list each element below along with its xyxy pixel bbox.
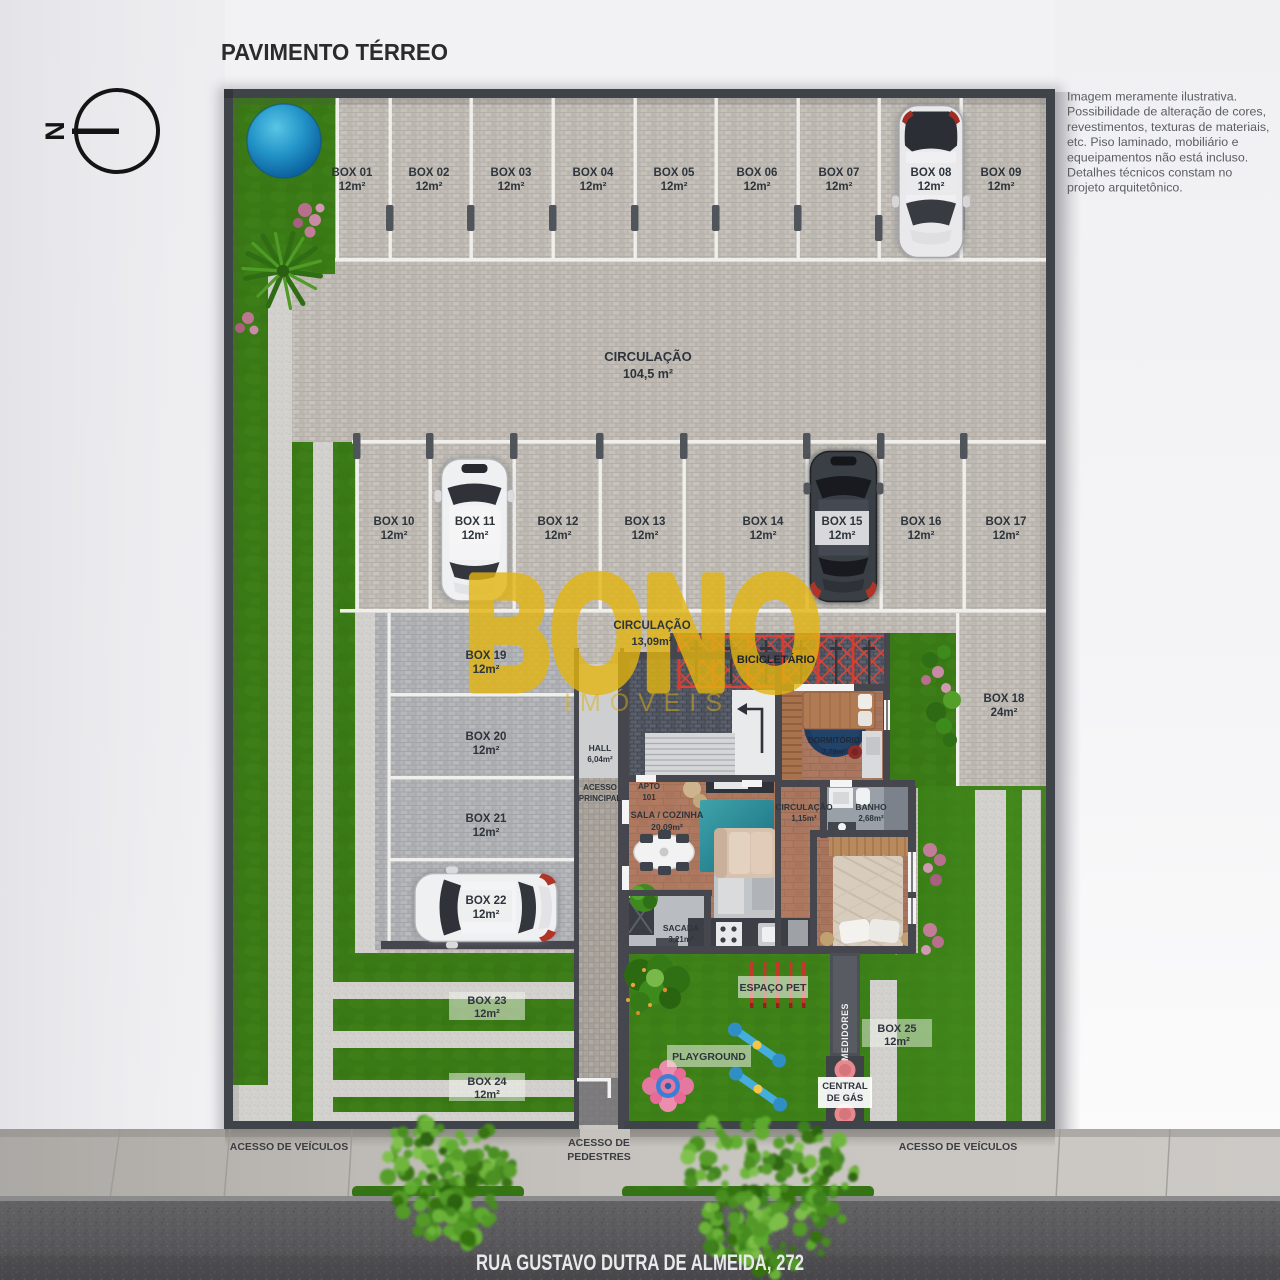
svg-text:APTO: APTO [638,782,660,791]
svg-text:N: N [40,121,70,141]
svg-text:BOX 07: BOX 07 [819,167,860,179]
svg-text:20,09m²: 20,09m² [651,822,683,832]
svg-text:PRINCIPAL: PRINCIPAL [579,794,622,803]
svg-text:Imagem meramente ilustrativa.: Imagem meramente ilustrativa. [1067,90,1237,104]
svg-text:3,21m²: 3,21m² [668,935,694,944]
svg-text:7,79m²: 7,79m² [822,747,846,756]
svg-text:12m²: 12m² [661,181,688,193]
svg-text:BOX 10: BOX 10 [374,516,415,528]
svg-text:12m²: 12m² [416,181,443,193]
svg-text:BOX 05: BOX 05 [654,167,696,179]
svg-text:PAVIMENTO TÉRREO: PAVIMENTO TÉRREO [221,38,448,65]
svg-text:BOX 19: BOX 19 [466,650,507,662]
svg-text:BOX 21: BOX 21 [466,813,508,825]
svg-text:BOX 23: BOX 23 [467,995,506,1007]
svg-text:CIRCULAÇÃO: CIRCULAÇÃO [775,802,833,812]
svg-text:DORMITÓRIO: DORMITÓRIO [808,736,860,745]
svg-text:12m²: 12m² [750,530,777,542]
svg-text:ACESSO DE VEÍCULOS: ACESSO DE VEÍCULOS [899,1140,1017,1153]
svg-text:12m²: 12m² [993,530,1020,542]
svg-text:revestimentos, texturas de mat: revestimentos, texturas de materiais, [1067,120,1269,134]
svg-text:BOX 17: BOX 17 [986,516,1027,528]
svg-text:BOX 15: BOX 15 [822,516,864,528]
svg-text:ACESSO: ACESSO [583,783,617,792]
svg-text:1,15m²: 1,15m² [791,814,817,823]
svg-text:BANHO: BANHO [855,802,887,812]
svg-text:RUA GUSTAVO DUTRA DE ALMEIDA,: RUA GUSTAVO DUTRA DE ALMEIDA, 272 [476,1250,804,1275]
svg-text:MEDIDORES: MEDIDORES [840,1003,850,1061]
svg-text:CIRCULAÇÃO: CIRCULAÇÃO [613,619,690,632]
svg-text:BOX 13: BOX 13 [625,516,666,528]
svg-text:SACADA: SACADA [663,923,699,933]
svg-text:12m²: 12m² [474,1008,500,1020]
svg-text:12m²: 12m² [744,181,771,193]
svg-text:BOX 22: BOX 22 [466,895,507,907]
svg-text:BOX 14: BOX 14 [743,516,785,528]
svg-text:ACESSO DE: ACESSO DE [568,1137,630,1149]
svg-text:12m²: 12m² [474,1089,500,1101]
svg-text:12m²: 12m² [498,181,525,193]
svg-text:CIRCULAÇÃO: CIRCULAÇÃO [604,349,691,364]
svg-text:12m²: 12m² [473,827,500,839]
svg-text:12m²: 12m² [826,181,853,193]
svg-text:etc. Piso laminado, mobiliário: etc. Piso laminado, mobiliário e [1067,135,1239,149]
svg-text:BOX 09: BOX 09 [981,167,1022,179]
svg-text:PLAYGROUND: PLAYGROUND [672,1051,746,1063]
svg-text:Detalhes técnicos constam no: Detalhes técnicos constam no [1067,166,1232,180]
svg-text:BICICLETÁRIO: BICICLETÁRIO [737,653,816,666]
svg-text:SALA / COZINHA: SALA / COZINHA [631,810,704,820]
svg-text:BOX 20: BOX 20 [466,731,507,743]
svg-text:12m²: 12m² [473,909,500,921]
svg-text:ACESSO DE VEÍCULOS: ACESSO DE VEÍCULOS [230,1140,348,1153]
svg-text:12m²: 12m² [918,181,945,193]
svg-text:BOX 01: BOX 01 [332,167,374,179]
svg-text:BOX 03: BOX 03 [491,167,532,179]
svg-text:12m²: 12m² [988,181,1015,193]
svg-text:12m²: 12m² [381,530,408,542]
svg-text:HALL: HALL [589,743,612,753]
svg-text:IMÓVEIS: IMÓVEIS [564,688,736,717]
svg-text:BOX 18: BOX 18 [984,693,1026,705]
svg-text:BOX 08: BOX 08 [911,167,953,179]
svg-text:BOX 25: BOX 25 [877,1023,916,1035]
svg-text:BOX 24: BOX 24 [467,1076,507,1088]
svg-text:12m²: 12m² [473,664,500,676]
svg-text:12m²: 12m² [884,1036,910,1048]
svg-text:12m²: 12m² [339,181,366,193]
svg-text:PEDESTRES: PEDESTRES [567,1151,631,1163]
svg-text:BOX 04: BOX 04 [573,167,615,179]
svg-text:BOX 02: BOX 02 [409,167,450,179]
svg-text:BOX 06: BOX 06 [737,167,778,179]
svg-text:equeipamentos não está incluso: equeipamentos não está incluso. [1067,150,1248,164]
svg-text:24m²: 24m² [991,707,1018,719]
svg-text:12m²: 12m² [580,181,607,193]
svg-text:CENTRAL: CENTRAL [822,1081,868,1092]
svg-text:12m²: 12m² [462,530,489,542]
svg-text:ESPAÇO PET: ESPAÇO PET [740,982,807,994]
svg-text:12m²: 12m² [473,745,500,757]
svg-text:projeto arquitetônico.: projeto arquitetônico. [1067,181,1183,195]
svg-text:Possibilidade de alteração de: Possibilidade de alteração de cores, [1067,105,1266,119]
svg-text:BOX 11: BOX 11 [455,516,496,528]
svg-text:DE GÁS: DE GÁS [827,1093,863,1104]
svg-text:6,04m²: 6,04m² [587,755,613,764]
svg-text:13,09m²: 13,09m² [632,636,673,648]
svg-text:BOX 12: BOX 12 [538,516,579,528]
svg-text:2,68m²: 2,68m² [858,814,884,823]
svg-text:12m²: 12m² [829,530,856,542]
svg-text:12m²: 12m² [908,530,935,542]
svg-text:101: 101 [642,793,656,802]
svg-text:12m²: 12m² [632,530,659,542]
svg-text:104,5 m²: 104,5 m² [623,367,673,381]
svg-text:12m²: 12m² [545,530,572,542]
svg-text:BOX 16: BOX 16 [901,516,942,528]
